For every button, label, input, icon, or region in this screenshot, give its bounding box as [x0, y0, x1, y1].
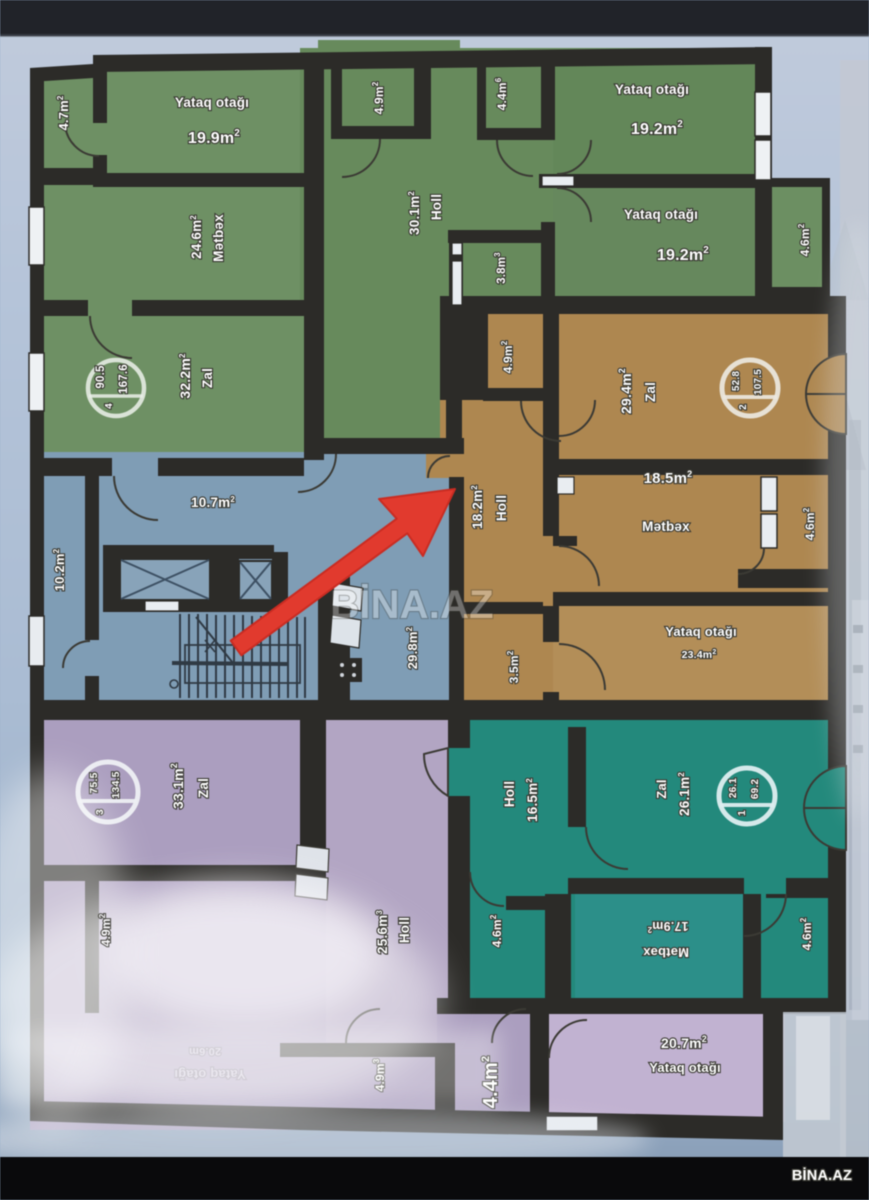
svg-text:4: 4 — [104, 403, 115, 409]
svg-text:Holl: Holl — [429, 194, 444, 220]
svg-text:16.5m2: 16.5m2 — [525, 778, 540, 822]
svg-text:Zal: Zal — [196, 778, 211, 798]
svg-text:20.7m2: 20.7m2 — [661, 1034, 707, 1051]
svg-text:1: 1 — [737, 810, 748, 816]
svg-text:29.8m2: 29.8m2 — [405, 626, 420, 669]
svg-text:32.2m2: 32.2m2 — [177, 353, 193, 399]
svg-text:Mətbəx: Mətbəx — [211, 214, 226, 262]
svg-text:19.9m2: 19.9m2 — [188, 128, 240, 147]
svg-text:Zal: Zal — [643, 382, 658, 402]
svg-text:30.1m2: 30.1m2 — [407, 191, 422, 235]
svg-text:BİNA.AZ: BİNA.AZ — [792, 1167, 852, 1184]
svg-text:10.7m2: 10.7m2 — [191, 495, 235, 510]
svg-text:75.5: 75.5 — [88, 772, 100, 793]
svg-text:Zal: Zal — [654, 779, 669, 798]
svg-text:Yataq otağı: Yataq otağı — [615, 82, 689, 97]
svg-text:Zal: Zal — [200, 368, 215, 388]
svg-text:18.5m2: 18.5m2 — [644, 469, 693, 487]
svg-text:2: 2 — [738, 404, 749, 410]
svg-text:24.6m2: 24.6m2 — [189, 215, 204, 259]
svg-text:90.5: 90.5 — [95, 365, 107, 389]
svg-text:Mətbəx: Mətbəx — [642, 519, 690, 534]
svg-text:19.2m2: 19.2m2 — [657, 245, 709, 264]
svg-text:134.5: 134.5 — [110, 771, 122, 798]
svg-text:Mətbəx: Mətbəx — [642, 945, 689, 960]
svg-text:10.2m2: 10.2m2 — [52, 548, 67, 591]
svg-text:17.9m2: 17.9m2 — [647, 919, 688, 934]
svg-text:23.4m2: 23.4m2 — [682, 649, 717, 661]
svg-text:BİNA.AZ: BİNA.AZ — [330, 583, 494, 627]
svg-text:Holl: Holl — [502, 781, 517, 807]
svg-text:69.2: 69.2 — [750, 779, 761, 800]
svg-text:26.1m2: 26.1m2 — [677, 772, 692, 816]
svg-text:26.1: 26.1 — [728, 778, 739, 799]
svg-text:Yataq otağı: Yataq otağı — [649, 1060, 721, 1075]
svg-text:33.1m2: 33.1m2 — [169, 763, 186, 809]
svg-text:18.2m2: 18.2m2 — [470, 485, 485, 529]
svg-text:29.4m2: 29.4m2 — [617, 368, 634, 414]
svg-text:Holl: Holl — [494, 495, 509, 521]
svg-text:167.6: 167.6 — [118, 364, 130, 394]
svg-text:Holl: Holl — [397, 917, 412, 943]
svg-text:52.8: 52.8 — [731, 371, 742, 392]
svg-text:Yataq otağı: Yataq otağı — [624, 207, 698, 222]
svg-text:4.7m2: 4.7m2 — [56, 95, 71, 130]
svg-text:25.6m3: 25.6m3 — [375, 910, 390, 954]
svg-text:107.5: 107.5 — [753, 369, 764, 395]
svg-text:Yataq otağı: Yataq otağı — [175, 95, 249, 110]
svg-text:19.2m2: 19.2m2 — [631, 119, 683, 138]
svg-text:Yataq otağı: Yataq otağı — [665, 624, 737, 639]
